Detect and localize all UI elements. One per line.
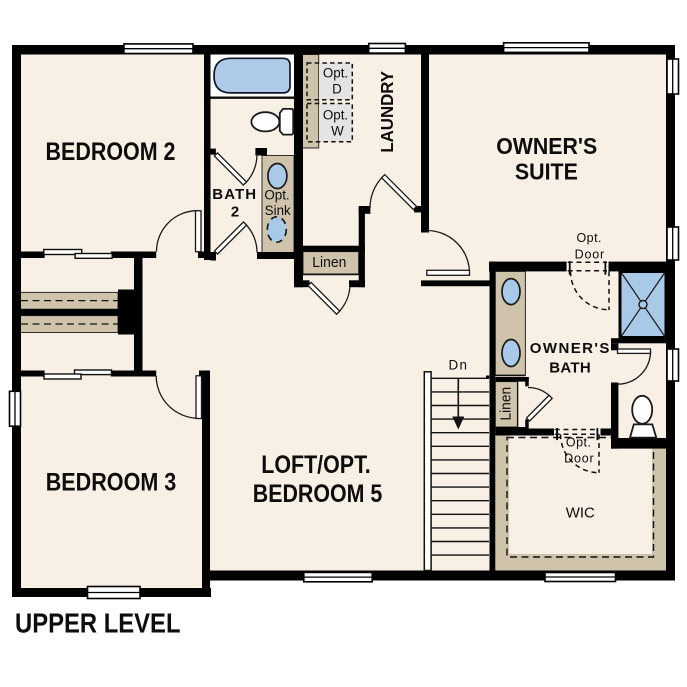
svg-text:Sink: Sink (265, 203, 291, 218)
svg-text:Door: Door (564, 452, 594, 466)
svg-text:Dn: Dn (448, 357, 467, 372)
svg-text:LOFT/OPT.: LOFT/OPT. (261, 451, 371, 479)
svg-text:2: 2 (231, 204, 239, 221)
svg-text:Linen: Linen (312, 254, 346, 271)
svg-text:BEDROOM 3: BEDROOM 3 (46, 469, 177, 497)
svg-text:Opt.: Opt. (323, 66, 348, 81)
svg-text:Opt.: Opt. (577, 231, 602, 245)
svg-text:SUITE: SUITE (515, 158, 578, 184)
svg-text:BEDROOM 2: BEDROOM 2 (46, 138, 176, 166)
svg-text:Door: Door (575, 248, 605, 262)
svg-text:WIC: WIC (566, 504, 595, 521)
svg-text:BEDROOM 5: BEDROOM 5 (253, 480, 383, 508)
svg-text:BATH: BATH (212, 186, 256, 203)
svg-text:D: D (332, 82, 342, 97)
svg-text:Linen: Linen (499, 387, 515, 421)
svg-text:UPPER LEVEL: UPPER LEVEL (15, 607, 181, 638)
svg-text:Opt.: Opt. (323, 108, 348, 123)
svg-text:Opt.: Opt. (566, 435, 591, 449)
svg-text:Opt.: Opt. (264, 188, 289, 203)
svg-text:OWNER'S: OWNER'S (496, 133, 597, 159)
svg-text:LAUNDRY: LAUNDRY (377, 71, 397, 153)
svg-text:W: W (331, 124, 344, 139)
svg-text:BATH: BATH (549, 359, 591, 376)
